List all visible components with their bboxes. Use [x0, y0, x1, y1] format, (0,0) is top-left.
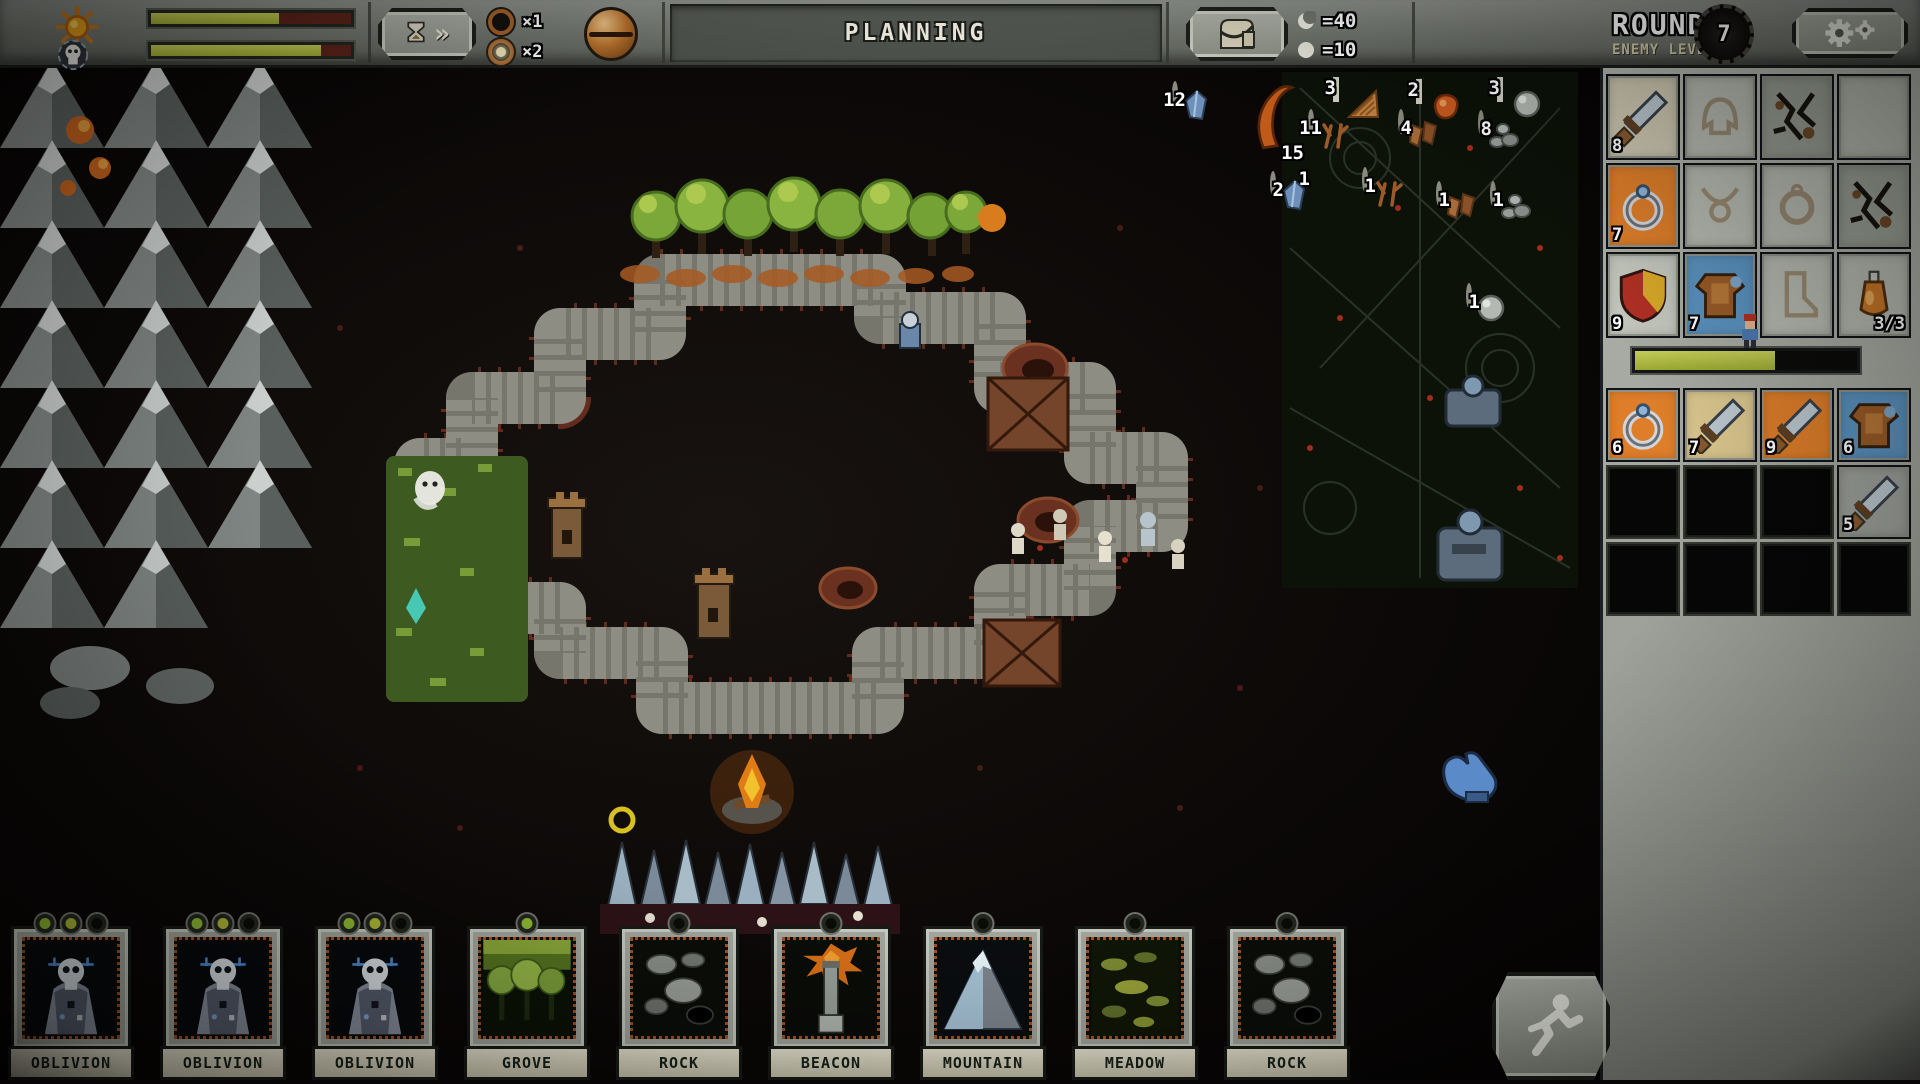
- card-pip-yellow: [214, 914, 233, 933]
- card-pip-dark: [670, 914, 689, 933]
- card-pip-dark: [240, 914, 259, 933]
- resource-count: 4: [1401, 117, 1412, 139]
- item-count: 7: [1689, 314, 1699, 334]
- loot-slot[interactable]: [1683, 542, 1757, 616]
- resource-count: 11: [1299, 117, 1322, 139]
- resource-count: 1: [1439, 189, 1450, 211]
- phase-title: PLANNING: [845, 20, 988, 46]
- autumn-tree: [978, 204, 1006, 232]
- card-name: OBLIVION: [31, 1054, 111, 1072]
- card-name: OBLIVION: [335, 1054, 415, 1072]
- resource-count: 8: [1481, 118, 1492, 140]
- card-pips: [974, 914, 993, 933]
- card-art: [326, 937, 424, 1039]
- card-pips: [1126, 914, 1145, 933]
- shield-icon: [1614, 260, 1672, 330]
- resource-count: 15: [1281, 142, 1304, 164]
- item-count: 9: [1766, 438, 1776, 458]
- enemy-level-value: 7: [1717, 22, 1730, 47]
- enemy-knight-sprite: [900, 312, 920, 348]
- resource-counter-pebbles: 1: [1490, 184, 1496, 203]
- day-meter-fill: [151, 13, 279, 24]
- round-label: ROUND: [1612, 8, 1706, 41]
- loot-slot[interactable]: [1760, 465, 1834, 539]
- card-rock[interactable]: ROCK: [1224, 914, 1350, 1080]
- card-pip-dark: [1278, 914, 1297, 933]
- resource-count: 2: [1273, 179, 1284, 201]
- skull-icon: [56, 38, 90, 72]
- boot-icon: [1768, 260, 1826, 330]
- campfire: [710, 750, 794, 834]
- hourglass-icon: [404, 20, 428, 48]
- card-pips: [188, 914, 259, 933]
- enemy-level-badge: 7: [1694, 4, 1754, 64]
- loot-slot[interactable]: 9: [1760, 388, 1834, 462]
- day-counter-value: =10: [1322, 39, 1356, 61]
- card-pip-yellow: [366, 914, 385, 933]
- equipment-slot-potion[interactable]: 3/3: [1837, 252, 1911, 338]
- resource-count: 1: [1469, 291, 1480, 313]
- card-pip-yellow: [62, 914, 81, 933]
- card-oblivion[interactable]: OBLIVION: [312, 914, 438, 1080]
- item-icon: [1691, 550, 1749, 608]
- card-pip-green: [340, 914, 359, 933]
- hp-fill: [1635, 351, 1775, 370]
- card-pips: [822, 914, 841, 933]
- card-art: [1086, 937, 1184, 1039]
- card-beacon[interactable]: BEACON: [768, 914, 894, 1080]
- resource-count: 3: [1325, 77, 1336, 99]
- gears-icon: [1818, 17, 1882, 49]
- card-name: MEADOW: [1105, 1054, 1165, 1072]
- resource-count: 3: [1489, 77, 1500, 99]
- item-count: 5: [1843, 515, 1853, 535]
- meadow-tiles: [386, 456, 528, 702]
- card-name: GROVE: [502, 1054, 552, 1072]
- card-pips: [340, 914, 411, 933]
- card-pips: [670, 914, 689, 933]
- item-icon: [1614, 473, 1672, 531]
- resource-counter-orb: 1: [1466, 286, 1472, 305]
- loot-slot[interactable]: 5: [1837, 465, 1911, 539]
- loot-slot[interactable]: 6: [1606, 388, 1680, 462]
- card-pip-dark: [392, 914, 411, 933]
- boss-meter: [148, 42, 354, 59]
- bag-icon: [1215, 14, 1259, 54]
- resource-counter-crystal: 12: [1172, 84, 1178, 103]
- resource-count: 2: [1408, 79, 1419, 101]
- boss-meter-fill: [151, 45, 321, 56]
- loot-slot[interactable]: [1837, 542, 1911, 616]
- item-count: 8: [1612, 136, 1622, 156]
- card-meadow[interactable]: MEADOW: [1072, 914, 1198, 1080]
- settings-button[interactable]: [1792, 8, 1908, 58]
- item-count: 7: [1689, 438, 1699, 458]
- watchtower: [548, 492, 586, 558]
- equipment-slot-amulet[interactable]: [1683, 163, 1757, 249]
- ringo-icon: [1768, 171, 1826, 241]
- resource-count: 12: [1163, 89, 1186, 111]
- resource-counter-rags: 1: [1436, 184, 1442, 203]
- loot-slot[interactable]: [1760, 542, 1834, 616]
- card-art: [1238, 937, 1336, 1039]
- resource-counter-orb: 3: [1497, 80, 1503, 99]
- phase-orb-icon: [584, 7, 638, 61]
- speed-button[interactable]: »: [378, 8, 476, 60]
- item-count: 6: [1612, 438, 1622, 458]
- ring-icon: [1614, 171, 1672, 241]
- card-pip-dark: [974, 914, 993, 933]
- card-art: [22, 937, 120, 1039]
- loop-hero-game-screen: { "top_bar": { "day_meter": { "icon": "s…: [0, 0, 1920, 1080]
- card-art: [934, 937, 1032, 1039]
- resource-counter-crystal: 2: [1270, 174, 1276, 193]
- card-pip-dark: [1126, 914, 1145, 933]
- resource-count: 1: [1493, 189, 1504, 211]
- item-count: 9: [1612, 314, 1622, 334]
- equipment-slot-ring-2[interactable]: [1760, 163, 1834, 249]
- card-name: BEACON: [801, 1054, 861, 1072]
- loot-slot[interactable]: 6: [1837, 388, 1911, 462]
- resource-counter-roof: 3: [1333, 80, 1339, 99]
- card-hand: OBLIVION OBLIVION OBLIVION GROVE ROCK BE…: [8, 914, 1350, 1080]
- item-count: 7: [1612, 225, 1622, 245]
- fast-forward-glyph: »: [434, 19, 450, 49]
- card-art: [782, 937, 880, 1039]
- equipment-slot-weapon[interactable]: 8: [1606, 74, 1680, 160]
- card-art: [174, 937, 272, 1039]
- resource-counter-twigs: 11: [1308, 112, 1314, 131]
- card-pips: [1278, 914, 1297, 933]
- equipment-slot-boots[interactable]: [1760, 252, 1834, 338]
- equipment-slot-ring[interactable]: 7: [1606, 163, 1680, 249]
- resource-count: 1: [1365, 175, 1376, 197]
- card-name: OBLIVION: [183, 1054, 263, 1072]
- amulet-icon: [1691, 171, 1749, 241]
- bag-button[interactable]: [1186, 7, 1288, 61]
- card-name: MOUNTAIN: [943, 1054, 1023, 1072]
- sword-icon: [1614, 82, 1672, 152]
- equipment-slot-shield[interactable]: 9: [1606, 252, 1680, 338]
- card-art: [478, 937, 576, 1039]
- item-icon: [1845, 82, 1903, 152]
- day-meter: [148, 10, 354, 27]
- item-icon: [1845, 550, 1903, 608]
- speed-x1-radio[interactable]: [488, 9, 514, 35]
- ring-icon: [1614, 396, 1672, 454]
- hp-bar: [1632, 348, 1860, 373]
- loot-slot[interactable]: 7: [1683, 388, 1757, 462]
- resource-counter-meat: 2: [1416, 82, 1422, 101]
- loot-slot[interactable]: [1606, 542, 1680, 616]
- card-name: ROCK: [659, 1054, 699, 1072]
- equipment-slot-empty-1[interactable]: [1837, 74, 1911, 160]
- card-grove[interactable]: GROVE: [464, 914, 590, 1080]
- sword-icon: [1768, 396, 1826, 454]
- item-icon: [1691, 473, 1749, 531]
- loot-slot[interactable]: [1606, 465, 1680, 539]
- item-count: 3/3: [1874, 314, 1905, 334]
- card-name: ROCK: [1267, 1054, 1307, 1072]
- retreat-button[interactable]: [1492, 972, 1610, 1080]
- loot-grid: 6 7 9 6 5: [1606, 388, 1911, 616]
- watchtower: [694, 568, 734, 638]
- time-counter-night: =40: [1296, 7, 1356, 35]
- hero-sprite: [1740, 314, 1760, 348]
- item-icon: [1768, 550, 1826, 608]
- night-counter-value: =40: [1322, 10, 1356, 32]
- resource-counter-rags: 4: [1398, 112, 1404, 131]
- equipment-slot-helmet[interactable]: [1683, 74, 1757, 160]
- resource-counter-horn: 15 1: [1252, 78, 1296, 156]
- card-pip-green: [518, 914, 537, 933]
- speed-x2-radio[interactable]: [488, 39, 514, 65]
- card-pips: [36, 914, 107, 933]
- moon-icon: [1296, 11, 1316, 31]
- helmet-icon: [1691, 82, 1749, 152]
- item-count: 6: [1843, 438, 1853, 458]
- sword-icon: [1845, 473, 1903, 531]
- item-icon: [1614, 550, 1672, 608]
- card-pip-dark: [822, 914, 841, 933]
- resource-counter-twigs: 1: [1362, 170, 1368, 189]
- loot-slot[interactable]: [1683, 465, 1757, 539]
- card-art: [630, 937, 728, 1039]
- equipment-slot-broken-2[interactable]: [1837, 163, 1911, 249]
- card-rock[interactable]: ROCK: [616, 914, 742, 1080]
- item-icon: [1768, 473, 1826, 531]
- runner-icon: [1518, 991, 1584, 1061]
- card-oblivion[interactable]: OBLIVION: [8, 914, 134, 1080]
- phase-panel: PLANNING: [670, 4, 1162, 62]
- armor-icon: [1845, 396, 1903, 454]
- speed-x1-label: ×1: [522, 12, 542, 32]
- time-counter-day: =10: [1296, 36, 1356, 64]
- sword-icon: [1691, 396, 1749, 454]
- equipment-grid: 8 7 9 7 3/3: [1606, 74, 1911, 338]
- card-pip-green: [36, 914, 55, 933]
- day-orb-icon: [1296, 40, 1316, 60]
- resource-counter-pebbles: 8: [1478, 113, 1484, 132]
- card-oblivion[interactable]: OBLIVION: [160, 914, 286, 1080]
- card-pip-dark: [88, 914, 107, 933]
- cracks-icon: [1768, 82, 1826, 152]
- card-mountain[interactable]: MOUNTAIN: [920, 914, 1046, 1080]
- equipment-slot-broken-1[interactable]: [1760, 74, 1834, 160]
- card-pip-green: [188, 914, 207, 933]
- cracks-icon: [1845, 171, 1903, 241]
- speed-x2-label: ×2: [522, 42, 542, 62]
- card-pips: [518, 914, 537, 933]
